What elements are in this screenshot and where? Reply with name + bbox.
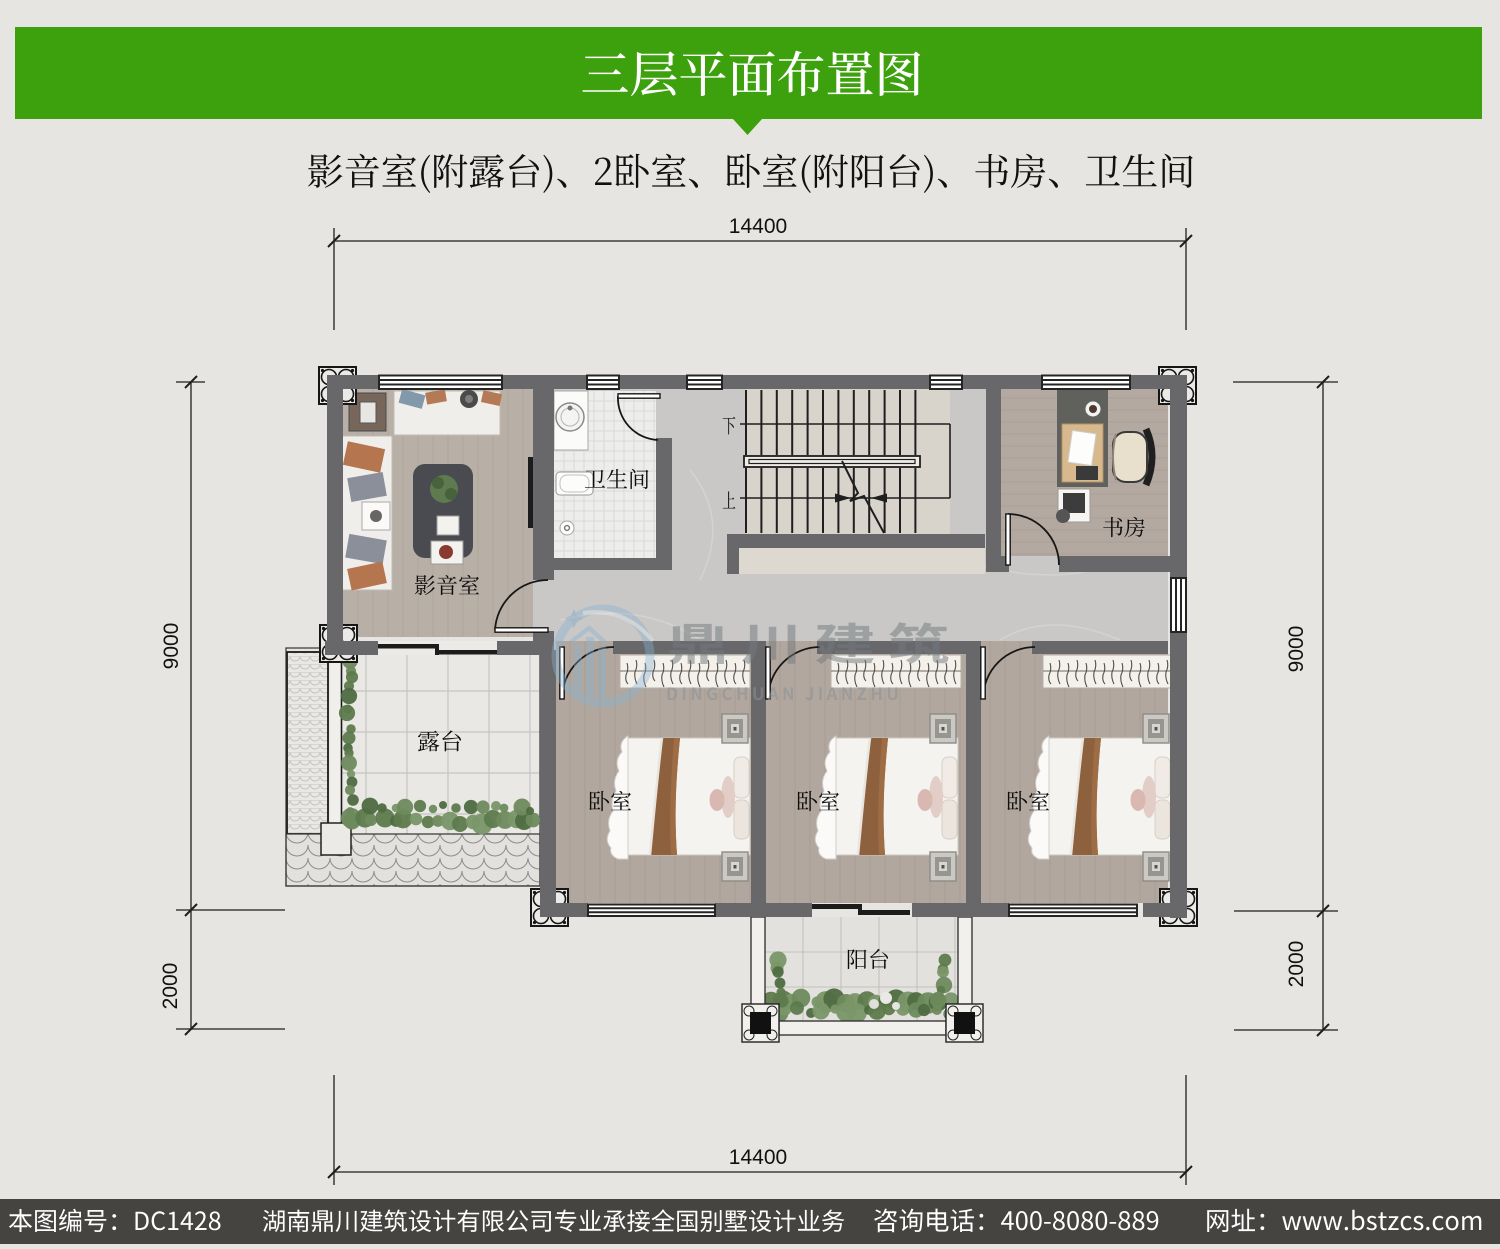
svg-text:9000: 9000 [160, 623, 183, 670]
svg-text:2000: 2000 [159, 963, 182, 1010]
svg-text:14400: 14400 [729, 1146, 787, 1169]
svg-text:9000: 9000 [1285, 626, 1308, 673]
svg-text:14400: 14400 [729, 215, 787, 238]
svg-text:2000: 2000 [1285, 941, 1308, 988]
